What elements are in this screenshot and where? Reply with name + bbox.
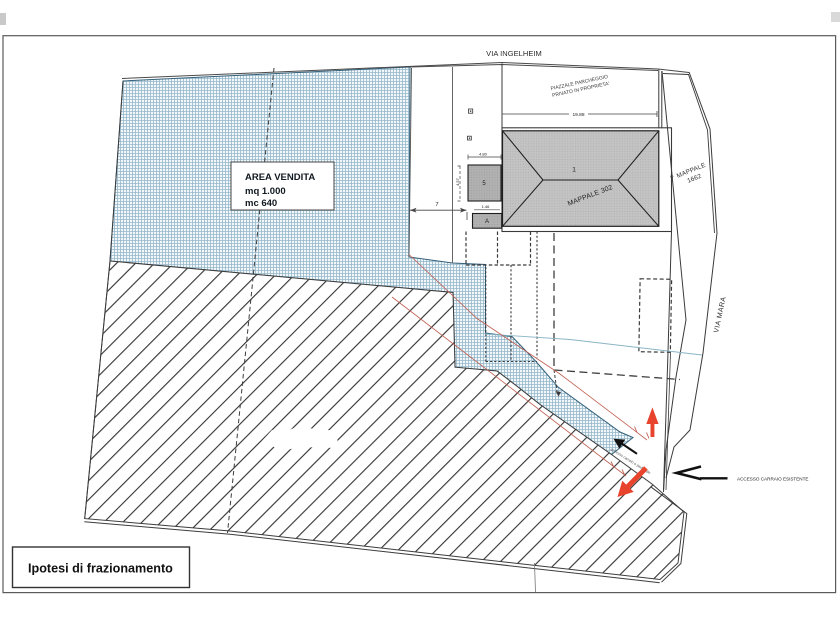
- svg-text:1.46: 1.46: [482, 204, 491, 209]
- svg-text:4.57: 4.57: [455, 177, 460, 186]
- svg-text:AREA VENDITA: AREA VENDITA: [245, 172, 315, 183]
- svg-text:19.88: 19.88: [572, 112, 584, 118]
- svg-text:ACCESSO CARRAIO ESISTENTE: ACCESSO CARRAIO ESISTENTE: [737, 477, 808, 482]
- svg-text:A: A: [485, 219, 489, 225]
- svg-text:mq 1.000: mq 1.000: [245, 186, 286, 197]
- svg-text:4.80: 4.80: [479, 151, 488, 156]
- svg-text:Ipotesi di frazionamento: Ipotesi di frazionamento: [28, 562, 173, 576]
- svg-text:1: 1: [572, 167, 576, 174]
- svg-text:VIA INGELHEIM: VIA INGELHEIM: [486, 49, 542, 58]
- svg-text:7: 7: [435, 202, 438, 208]
- svg-text:mc 640: mc 640: [245, 198, 277, 209]
